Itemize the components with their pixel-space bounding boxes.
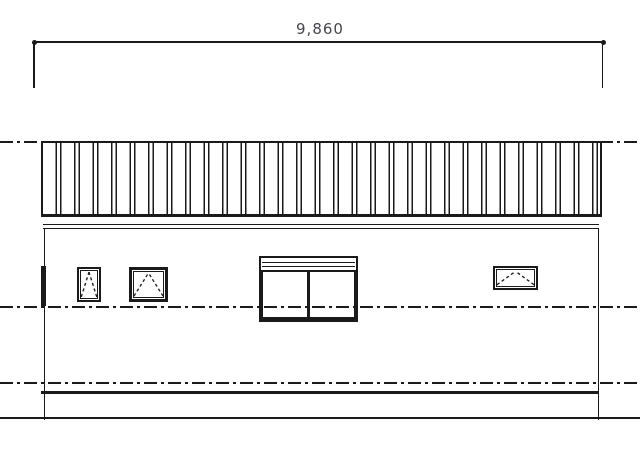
ground-line	[0, 417, 640, 419]
shutter-box	[259, 256, 358, 271]
dimension-label: 9,860	[260, 20, 380, 38]
elevation-drawing-sheet: 9,860	[0, 0, 640, 450]
window-center-mullion	[307, 272, 310, 317]
dimension-extension-right	[602, 41, 604, 88]
shutter-slat-line	[262, 262, 355, 263]
sill-level-centerline	[0, 306, 640, 308]
dimension-extension-left	[33, 41, 35, 88]
shutter-slat-line	[262, 266, 355, 267]
corner-downspout	[41, 266, 46, 306]
opening-direction-dashes	[79, 269, 99, 300]
opening-direction-dashes	[132, 270, 165, 299]
medium-awning-window	[129, 267, 168, 302]
base-level-centerline	[0, 382, 640, 384]
standing-seam-roof	[41, 141, 602, 217]
floor-slab-line	[41, 391, 599, 394]
wide-awning-window	[493, 266, 538, 290]
dimension-line	[34, 41, 603, 43]
small-awning-window	[77, 267, 101, 302]
opening-direction-dashes	[495, 268, 536, 288]
sliding-window	[259, 271, 358, 322]
